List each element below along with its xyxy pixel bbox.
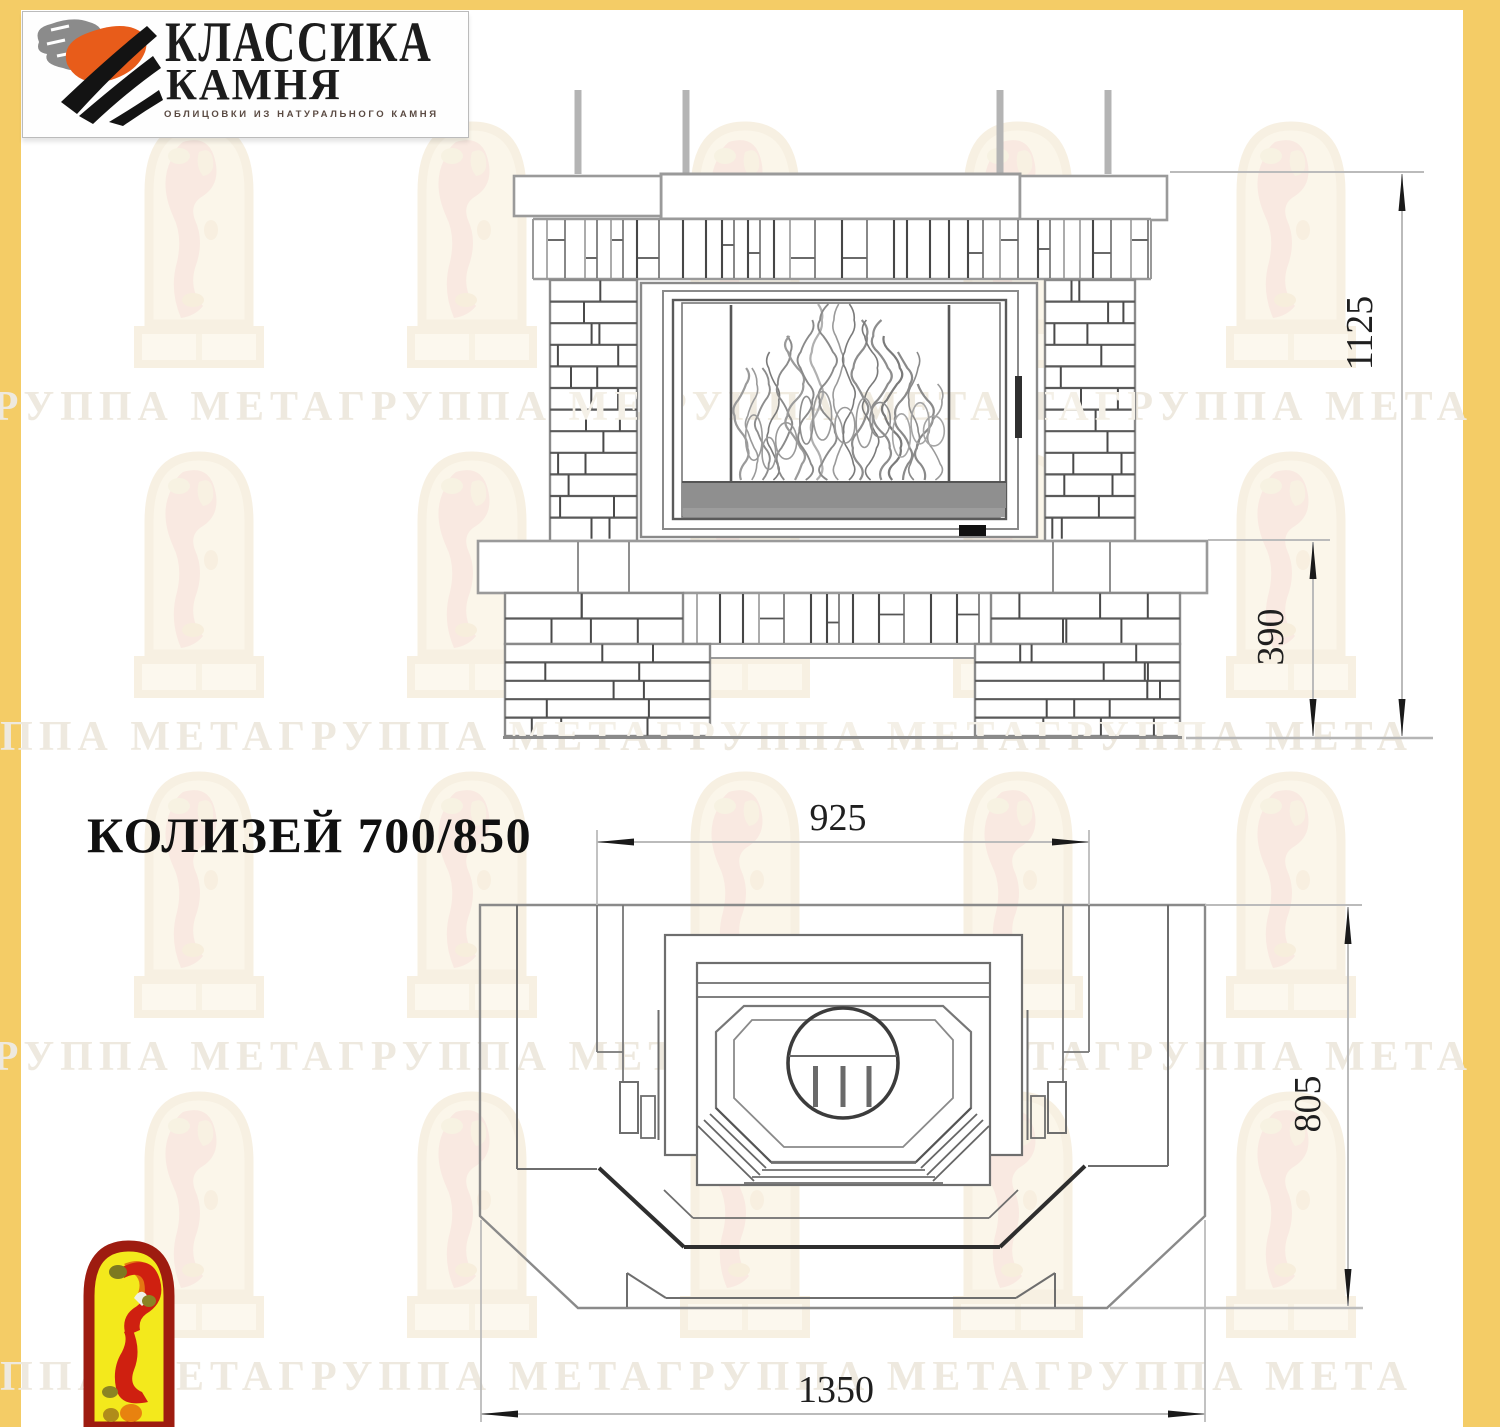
svg-text:ГРУППА МЕТАГРУППА МЕТАГРУППА М: ГРУППА МЕТАГРУППА МЕТАГРУППА МЕТАГРУППА … xyxy=(0,1354,1413,1400)
svg-text:805: 805 xyxy=(1287,1076,1329,1133)
svg-text:1350: 1350 xyxy=(798,1369,874,1411)
svg-text:925: 925 xyxy=(810,797,867,839)
svg-text:1125: 1125 xyxy=(1339,296,1381,371)
svg-text:390: 390 xyxy=(1250,609,1292,666)
